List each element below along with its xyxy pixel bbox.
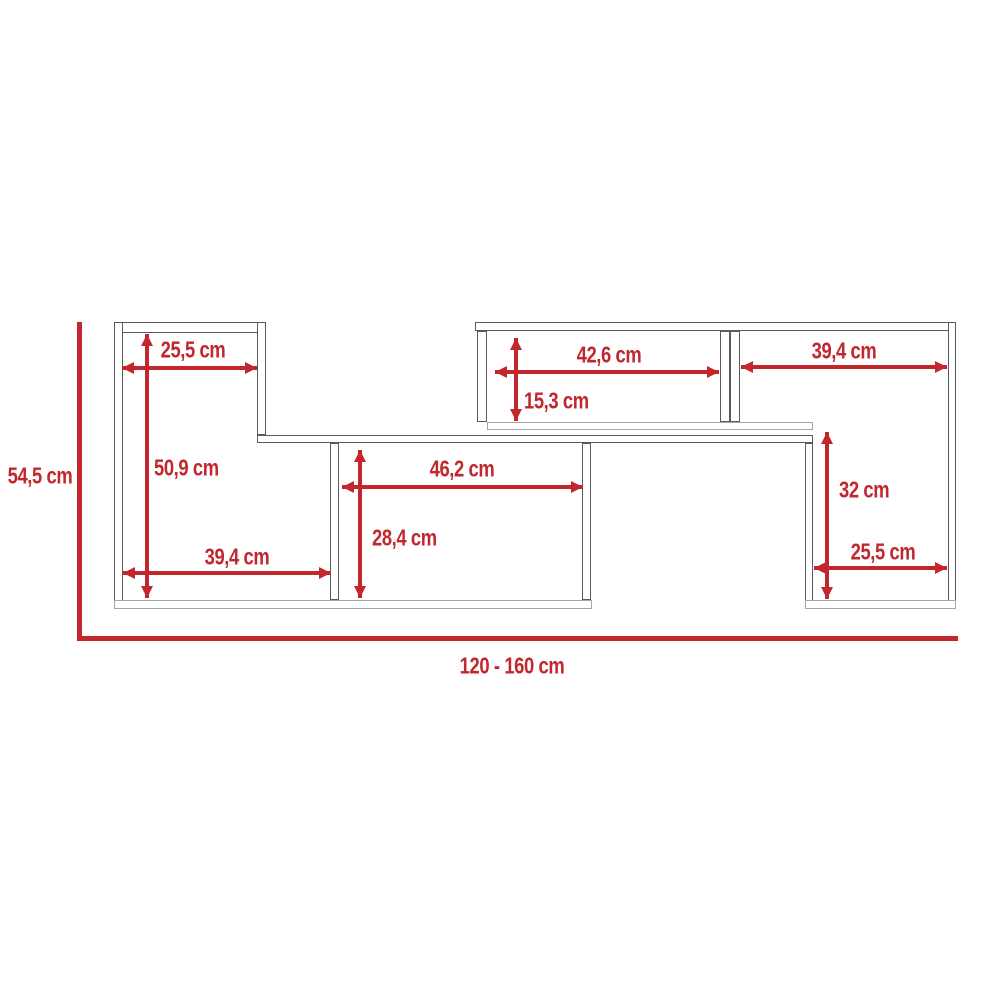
dimension-line-upper-middle-compartment-width (495, 370, 719, 374)
dimension-label-right-compartment-height: 32 cm (839, 479, 889, 502)
bottom-left-panel (114, 600, 592, 609)
arrowhead-left-upper-right-compartment-width (741, 361, 753, 373)
dimension-label-upper-right-compartment-width: 39,4 cm (812, 340, 877, 363)
arrowhead-left-middle-compartment-width (342, 481, 354, 493)
upper-right-box-left-panel (477, 331, 487, 422)
upper-right-floor-panel (487, 422, 813, 430)
overall-height-line (77, 322, 82, 641)
overall-height-label: 54,5 cm (8, 465, 73, 488)
left-box-right-panel (257, 322, 266, 435)
middle-compartment-left-panel (330, 443, 339, 600)
right-box-right-panel (948, 322, 956, 608)
dimension-line-left-box-height (145, 334, 149, 598)
dimension-line-middle-compartment-width (342, 485, 583, 489)
dimension-label-left-shelf-width: 25,5 cm (161, 339, 226, 362)
right-box-bottom-panel (805, 600, 956, 609)
arrowhead-bottom-left-box-height (141, 586, 153, 598)
overall-width-label: 120 - 160 cm (460, 655, 565, 678)
arrowhead-left-upper-middle-compartment-width (495, 366, 507, 378)
arrowhead-bottom-middle-compartment-height (354, 586, 366, 598)
dimension-line-right-bottom-width (814, 566, 947, 570)
arrowhead-left-left-bottom-width (123, 567, 135, 579)
overall-width-line (77, 636, 958, 641)
arrowhead-bottom-upper-compartment-height (510, 409, 522, 421)
dimension-label-middle-compartment-height: 28,4 cm (372, 527, 437, 550)
dimension-line-left-bottom-width (123, 571, 331, 575)
dimension-label-left-box-height: 50,9 cm (154, 457, 219, 480)
right-box-left-panel (805, 443, 813, 608)
arrowhead-right-middle-compartment-width (571, 481, 583, 493)
upper-right-box-top-panel (475, 322, 956, 331)
arrowhead-left-left-shelf-width (122, 362, 134, 374)
arrowhead-top-middle-compartment-height (354, 450, 366, 462)
middle-compartment-right-panel (582, 443, 591, 600)
middle-shelf-panel (257, 435, 813, 443)
left-box-top-panel (114, 322, 266, 333)
upper-right-divider-panel-a (720, 331, 730, 422)
arrowhead-right-left-bottom-width (319, 567, 331, 579)
arrowhead-top-right-compartment-height (821, 432, 833, 444)
dimension-label-upper-middle-compartment-width: 42,6 cm (577, 344, 642, 367)
dimension-line-upper-right-compartment-width (741, 365, 947, 369)
dimension-label-middle-compartment-width: 46,2 cm (430, 458, 495, 481)
arrowhead-bottom-right-compartment-height (821, 587, 833, 599)
dimension-diagram: 25,5 cm39,4 cm46,2 cm42,6 cm39,4 cm25,5 … (0, 0, 1000, 1000)
dimension-line-middle-compartment-height (358, 450, 362, 598)
arrowhead-right-upper-right-compartment-width (935, 361, 947, 373)
dimension-line-right-compartment-height (825, 432, 829, 599)
arrowhead-right-upper-middle-compartment-width (707, 366, 719, 378)
dimension-label-upper-compartment-height: 15,3 cm (524, 390, 589, 413)
upper-right-divider-panel-b (730, 331, 740, 422)
arrowhead-top-upper-compartment-height (510, 338, 522, 350)
dimension-label-left-bottom-width: 39,4 cm (205, 546, 270, 569)
arrowhead-right-right-bottom-width (935, 562, 947, 574)
dimension-label-right-bottom-width: 25,5 cm (851, 541, 916, 564)
dimension-line-left-shelf-width (122, 366, 257, 370)
arrowhead-right-left-shelf-width (245, 362, 257, 374)
arrowhead-top-left-box-height (141, 334, 153, 346)
